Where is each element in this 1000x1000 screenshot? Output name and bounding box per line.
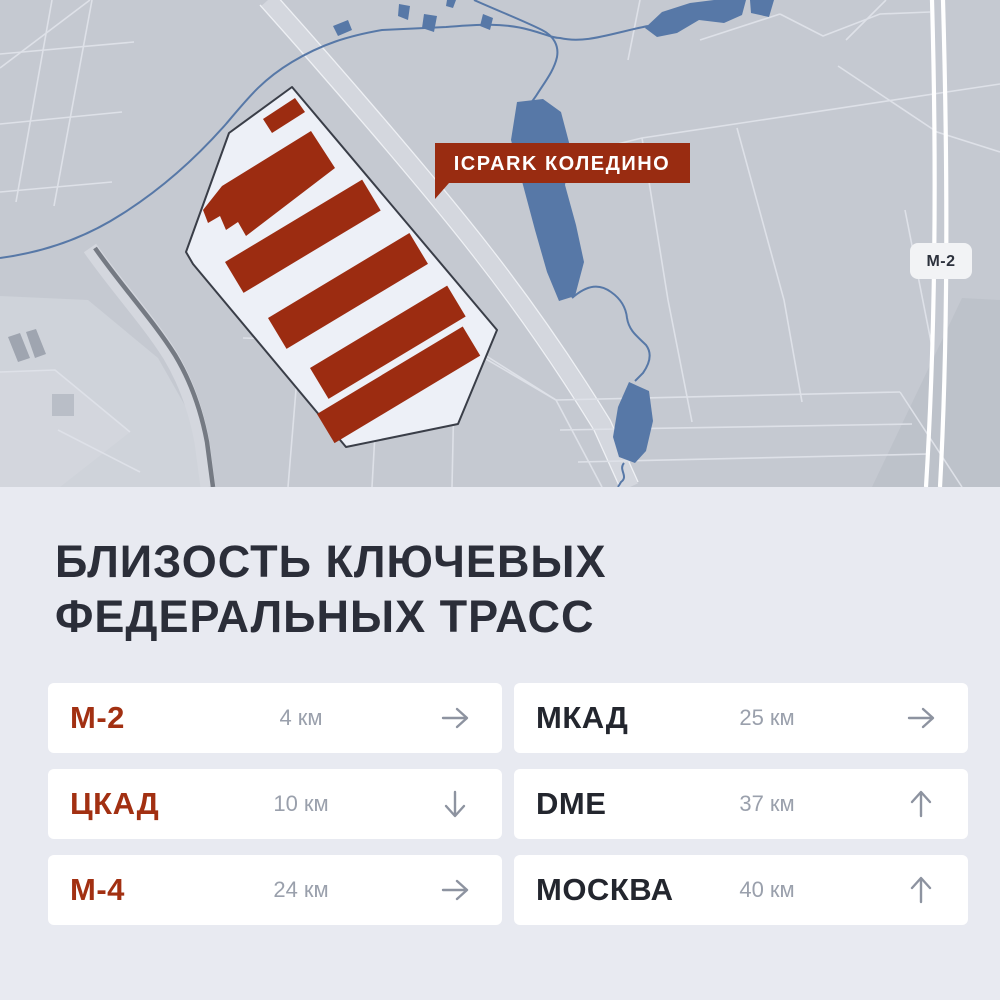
distance-card-moscow: МОСКВА 40 км: [514, 855, 968, 925]
road-name: ЦКАД: [70, 786, 159, 822]
road-distance: 25 км: [739, 705, 794, 731]
m2-road-badge: М-2: [910, 243, 972, 279]
distance-cards-grid: М-2 4 км МКАД 25 км ЦКАД 10 км: [48, 683, 968, 925]
road-distance: 40 км: [739, 877, 794, 903]
direction-arrow-icon: [438, 701, 472, 735]
direction-arrow-icon: [904, 787, 938, 821]
road-distance: 4 км: [279, 705, 322, 731]
direction-arrow-icon: [904, 873, 938, 907]
road-name: МОСКВА: [536, 872, 673, 908]
distance-card-m4: М-4 24 км: [48, 855, 502, 925]
distance-card-mkad: МКАД 25 км: [514, 683, 968, 753]
direction-arrow-icon: [438, 873, 472, 907]
project-label-text: ICPARK КОЛЕДИНО: [454, 153, 671, 175]
direction-arrow-icon: [438, 787, 472, 821]
distance-card-dme: DME 37 км: [514, 769, 968, 839]
direction-arrow-icon: [904, 701, 938, 735]
road-distance: 37 км: [739, 791, 794, 817]
distance-card-m2: М-2 4 км: [48, 683, 502, 753]
map-graphic: ICPARK КОЛЕДИНО М-2: [0, 0, 1000, 487]
m2-badge-text: М-2: [926, 253, 955, 270]
infographic-root: ICPARK КОЛЕДИНО М-2 БЛИЗОСТЬ КЛЮЧЕВЫХ ФЕ…: [0, 0, 1000, 1000]
map-section: ICPARK КОЛЕДИНО М-2: [0, 0, 1000, 487]
distances-panel: БЛИЗОСТЬ КЛЮЧЕВЫХ ФЕДЕРАЛЬНЫХ ТРАСС М-2 …: [0, 487, 1000, 1000]
road-distance: 10 км: [273, 791, 328, 817]
road-name: М-2: [70, 700, 125, 736]
road-name: МКАД: [536, 700, 628, 736]
distance-card-ckad: ЦКАД 10 км: [48, 769, 502, 839]
panel-title-line1: БЛИЗОСТЬ КЛЮЧЕВЫХ: [55, 534, 607, 589]
panel-title: БЛИЗОСТЬ КЛЮЧЕВЫХ ФЕДЕРАЛЬНЫХ ТРАСС: [55, 534, 607, 644]
road-name: DME: [536, 786, 606, 822]
panel-title-line2: ФЕДЕРАЛЬНЫХ ТРАСС: [55, 589, 607, 644]
road-name: М-4: [70, 872, 125, 908]
road-distance: 24 км: [273, 877, 328, 903]
